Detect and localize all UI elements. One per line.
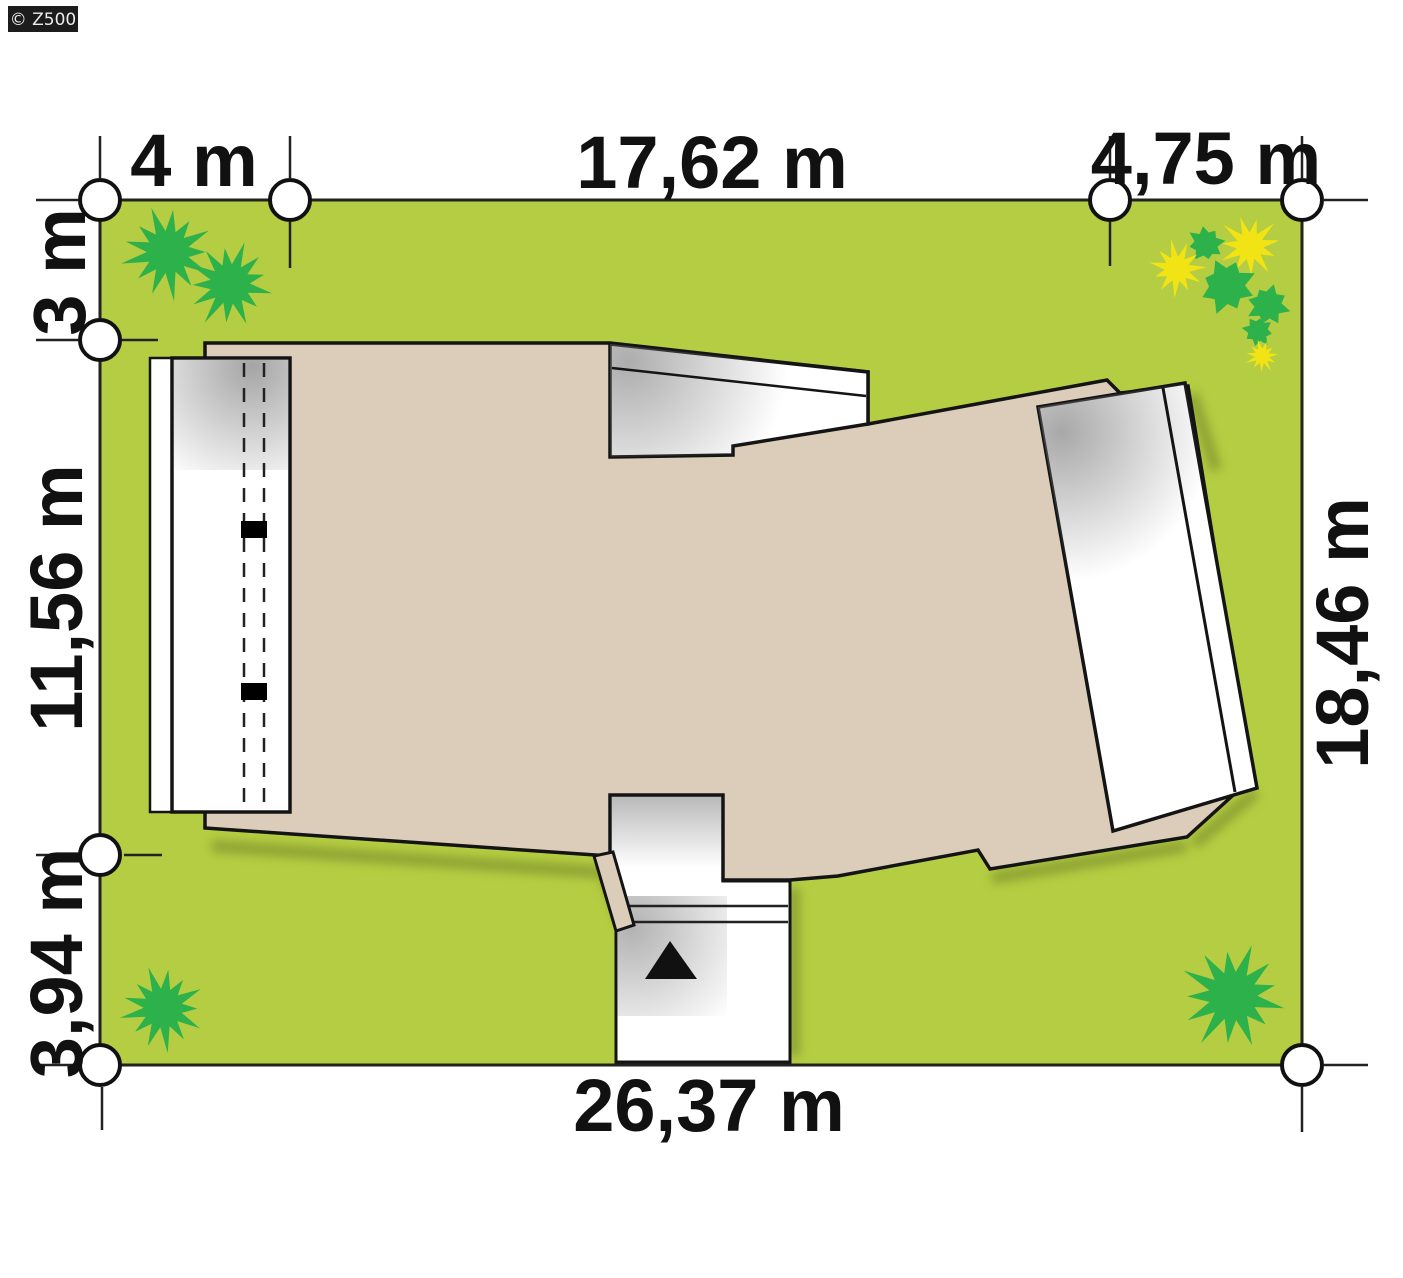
dimension-label-top-2: 17,62 m [576, 121, 848, 204]
survey-marker [1282, 1045, 1322, 1085]
left-terrace-shadow [174, 360, 288, 470]
dimension-label-left-2: 11,56 m [15, 464, 98, 731]
site-plan-page: 4 m 17,62 m 4,75 m 3 m 11,56 m 3,94 m 18… [0, 0, 1403, 1278]
dimension-label-bottom: 26,37 m [573, 1064, 845, 1147]
entrance-shadow [612, 796, 722, 868]
dimension-label-top-1: 4 m [130, 119, 258, 202]
dimension-label-right: 18,46 m [1301, 497, 1384, 769]
site-plan-drawing: 4 m 17,62 m 4,75 m 3 m 11,56 m 3,94 m 18… [0, 0, 1403, 1278]
watermark: © Z500 [8, 6, 78, 32]
terrace-post [241, 521, 267, 538]
terrace-post [241, 683, 267, 700]
watermark-text: © Z500 [10, 10, 77, 30]
dimension-label-left-1: 3 m [18, 208, 101, 336]
dimension-label-top-3: 4,75 m [1091, 117, 1321, 200]
survey-marker [270, 180, 310, 220]
dimension-label-left-3: 3,94 m [15, 848, 98, 1078]
left-terrace-edge-strip [150, 358, 172, 812]
